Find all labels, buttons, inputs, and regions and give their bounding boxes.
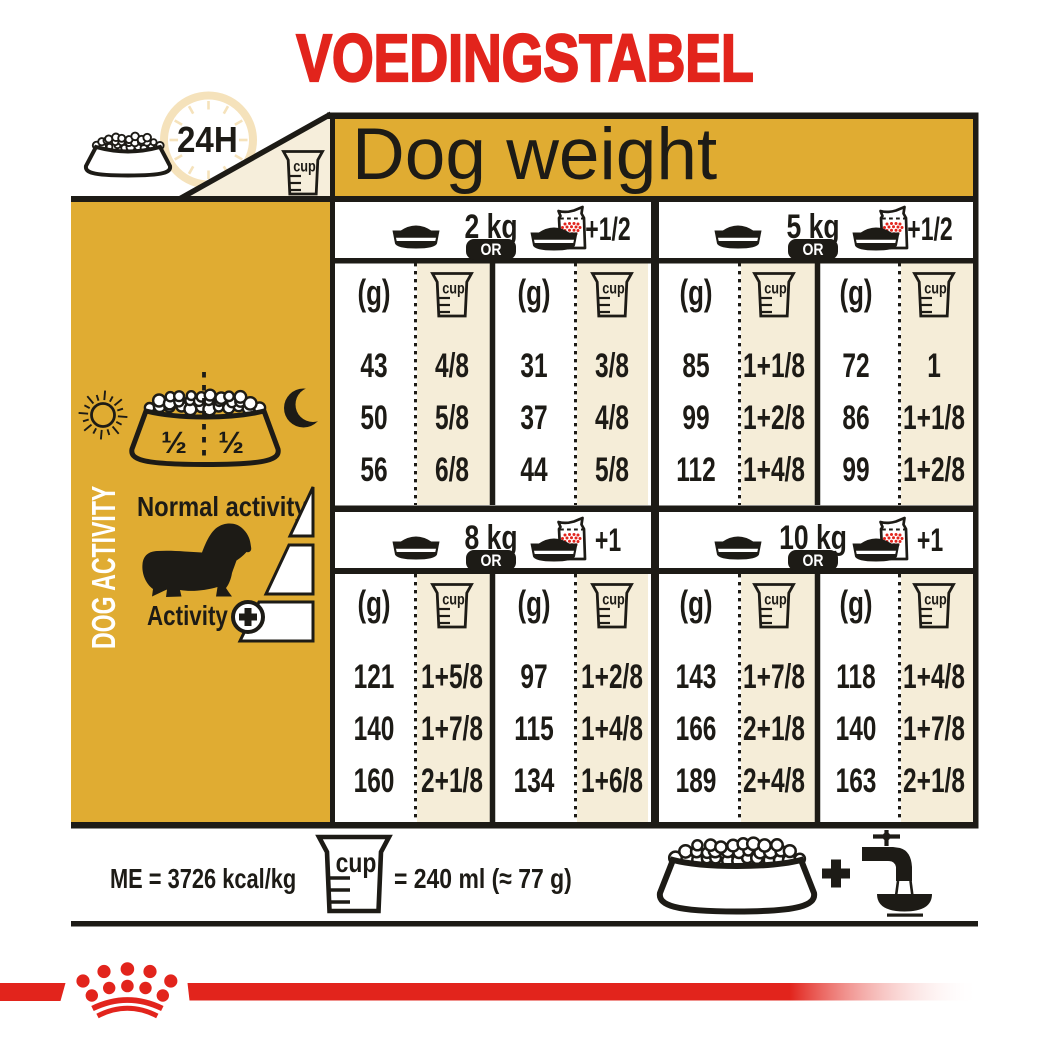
svg-text:4/8: 4/8 [435,347,469,385]
svg-text:56: 56 [360,451,387,489]
svg-text:(g): (g) [679,584,712,624]
svg-text:1: 1 [927,347,941,385]
svg-text:Normal activity: Normal activity [137,490,308,522]
svg-text:97: 97 [520,658,547,696]
svg-text:1+2/8: 1+2/8 [903,451,965,489]
svg-text:1+2/8: 1+2/8 [581,658,643,696]
svg-text:1+1/8: 1+1/8 [903,399,965,437]
svg-text:OR: OR [480,241,501,259]
svg-text:3/8: 3/8 [595,347,629,385]
svg-text:VOEDINGSTABEL: VOEDINGSTABEL [296,20,754,95]
svg-text:1+2/8: 1+2/8 [743,399,805,437]
svg-text:2+4/8: 2+4/8 [743,762,805,800]
svg-text:1+7/8: 1+7/8 [421,710,483,748]
svg-text:2+1/8: 2+1/8 [903,762,965,800]
svg-text:1+7/8: 1+7/8 [903,710,965,748]
svg-text:1+4/8: 1+4/8 [743,451,805,489]
svg-text:163: 163 [836,762,877,800]
svg-text:1+7/8: 1+7/8 [743,658,805,696]
svg-text:OR: OR [802,552,823,570]
svg-text:1+1/8: 1+1/8 [743,347,805,385]
svg-text:24H: 24H [177,121,238,161]
svg-text:Dog weight: Dog weight [352,114,717,195]
svg-text:½: ½ [218,425,244,460]
svg-text:= 240 ml (≈ 77 g): = 240 ml (≈ 77 g) [394,864,572,895]
svg-text:2+1/8: 2+1/8 [421,762,483,800]
svg-text:(g): (g) [357,273,390,313]
svg-text:1+6/8: 1+6/8 [581,762,643,800]
svg-text:1+4/8: 1+4/8 [903,658,965,696]
svg-text:½: ½ [161,425,187,460]
svg-text:134: 134 [514,762,555,800]
svg-text:+1/2: +1/2 [907,211,952,247]
svg-text:140: 140 [836,710,877,748]
svg-text:118: 118 [836,658,875,696]
svg-text:5/8: 5/8 [435,399,469,437]
svg-text:121: 121 [354,658,395,696]
svg-text:31: 31 [520,347,547,385]
svg-text:160: 160 [354,762,395,800]
svg-text:85: 85 [682,347,709,385]
svg-text:(g): (g) [839,273,872,313]
svg-text:115: 115 [514,710,553,748]
svg-text:+1: +1 [917,522,943,558]
svg-text:(g): (g) [839,584,872,624]
svg-text:37: 37 [520,399,547,437]
svg-text:cup: cup [336,848,377,879]
svg-text:99: 99 [842,451,869,489]
svg-text:OR: OR [802,241,823,259]
svg-text:(g): (g) [517,273,550,313]
svg-text:4/8: 4/8 [595,399,629,437]
svg-text:72: 72 [842,347,869,385]
svg-text:(g): (g) [357,584,390,624]
svg-text:99: 99 [682,399,709,437]
svg-text:166: 166 [676,710,717,748]
svg-text:140: 140 [354,710,395,748]
svg-text:189: 189 [676,762,717,800]
svg-text:1+5/8: 1+5/8 [421,658,483,696]
svg-text:+1: +1 [595,522,621,558]
svg-text:44: 44 [520,451,548,489]
svg-text:(g): (g) [517,584,550,624]
svg-text:86: 86 [842,399,869,437]
svg-text:OR: OR [480,552,501,570]
svg-text:+1/2: +1/2 [585,211,630,247]
svg-text:ME = 3726 kcal/kg: ME = 3726 kcal/kg [110,863,296,894]
svg-text:DOG ACTIVITY: DOG ACTIVITY [86,486,123,649]
svg-text:(g): (g) [679,273,712,313]
svg-text:5/8: 5/8 [595,451,629,489]
svg-text:1+4/8: 1+4/8 [581,710,643,748]
svg-text:143: 143 [676,658,717,696]
svg-text:50: 50 [360,399,387,437]
svg-text:Activity: Activity [147,601,228,632]
svg-text:6/8: 6/8 [435,451,469,489]
svg-text:112: 112 [676,451,715,489]
svg-text:2+1/8: 2+1/8 [743,710,805,748]
svg-text:43: 43 [360,347,387,385]
